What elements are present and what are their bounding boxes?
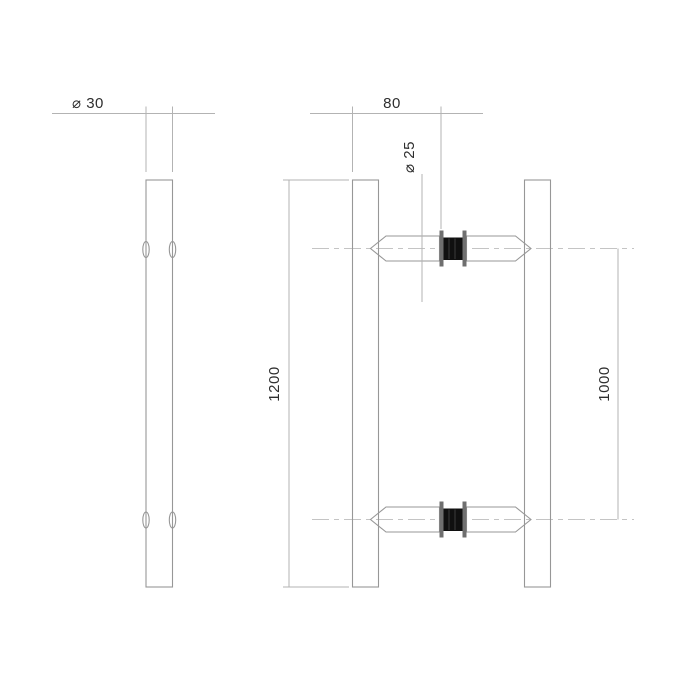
dim-label-1000: 1000 [596, 366, 613, 401]
top-support-left-flange [440, 231, 444, 267]
front-view-left-handle-bar [353, 180, 379, 587]
bottom-glass-spacer [444, 509, 463, 532]
front-view: 80 ⌀ 25 1200 1000 [266, 95, 634, 587]
dimension-1000: 1000 [596, 249, 618, 520]
top-glass-spacer [444, 238, 463, 261]
side-view-handle-bar [146, 180, 173, 587]
dim-label-80: 80 [383, 95, 401, 112]
dimension-diameter-30: ⌀ 30 [52, 95, 215, 172]
dimension-diameter-25: ⌀ 25 [401, 141, 422, 302]
dim-label-diameter-25: ⌀ 25 [401, 141, 418, 173]
side-view: ⌀ 30 [52, 95, 215, 587]
dim-label-1200: 1200 [266, 366, 283, 401]
front-view-right-handle-bar [525, 180, 551, 587]
top-support-right-flange [463, 231, 467, 267]
drawing-page: ⌀ 30 [0, 0, 700, 700]
dimension-1200: 1200 [266, 180, 349, 587]
bottom-support-right-flange [463, 502, 467, 538]
dimension-80: 80 [310, 95, 483, 229]
drawing-canvas: ⌀ 30 [0, 0, 700, 700]
bottom-support-left-flange [440, 502, 444, 538]
dim-label-diameter-30: ⌀ 30 [72, 95, 104, 112]
